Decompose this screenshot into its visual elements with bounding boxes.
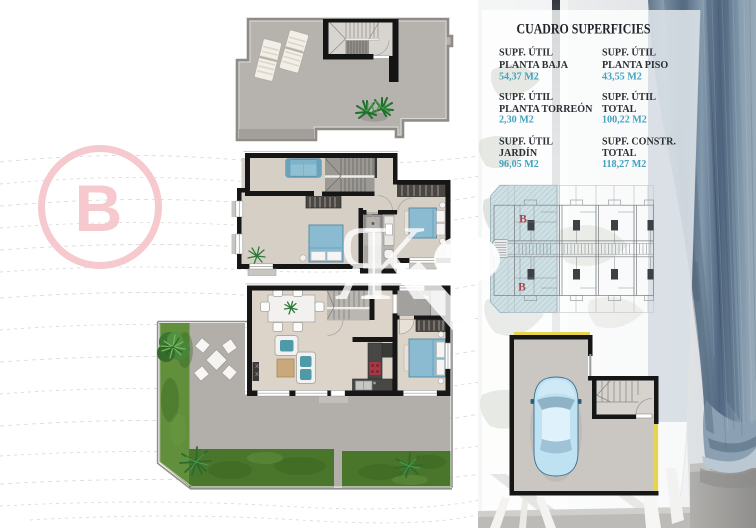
svg-text:PLANTA PISO: PLANTA PISO [602,60,668,71]
svg-text:100,22 M2: 100,22 M2 [602,115,647,126]
svg-text:54,37 M2: 54,37 M2 [499,72,539,83]
svg-text:B: B [519,214,527,226]
svg-text:SUPF. CONSTR.: SUPF. CONSTR. [602,137,676,148]
svg-text:PLANTA TORREÓN: PLANTA TORREÓN [499,103,593,115]
svg-text:TOTAL: TOTAL [602,104,637,115]
svg-text:SUPF. ÚTIL: SUPF. ÚTIL [499,47,553,59]
svg-text:43,55 M2: 43,55 M2 [602,72,642,83]
svg-text:PLANTA BAJA: PLANTA BAJA [499,60,569,71]
svg-text:B: B [518,282,526,294]
svg-text:118,27 M2: 118,27 M2 [602,159,646,170]
svg-text:JARDÍN: JARDÍN [499,147,538,159]
svg-text:B: B [75,171,123,245]
svg-text:SUPF. ÚTIL: SUPF. ÚTIL [602,91,656,103]
svg-text:SUPF. ÚTIL: SUPF. ÚTIL [602,47,656,59]
svg-text:SUPF. ÚTIL: SUPF. ÚTIL [499,136,553,148]
svg-text:2,30 M2: 2,30 M2 [499,115,534,126]
svg-text:96,05 M2: 96,05 M2 [499,159,539,170]
svg-text:TOTAL: TOTAL [602,148,637,159]
svg-text:SUPF. ÚTIL: SUPF. ÚTIL [499,91,553,103]
svg-text:CUADRO SUPERFICIES: CUADRO SUPERFICIES [517,22,651,38]
